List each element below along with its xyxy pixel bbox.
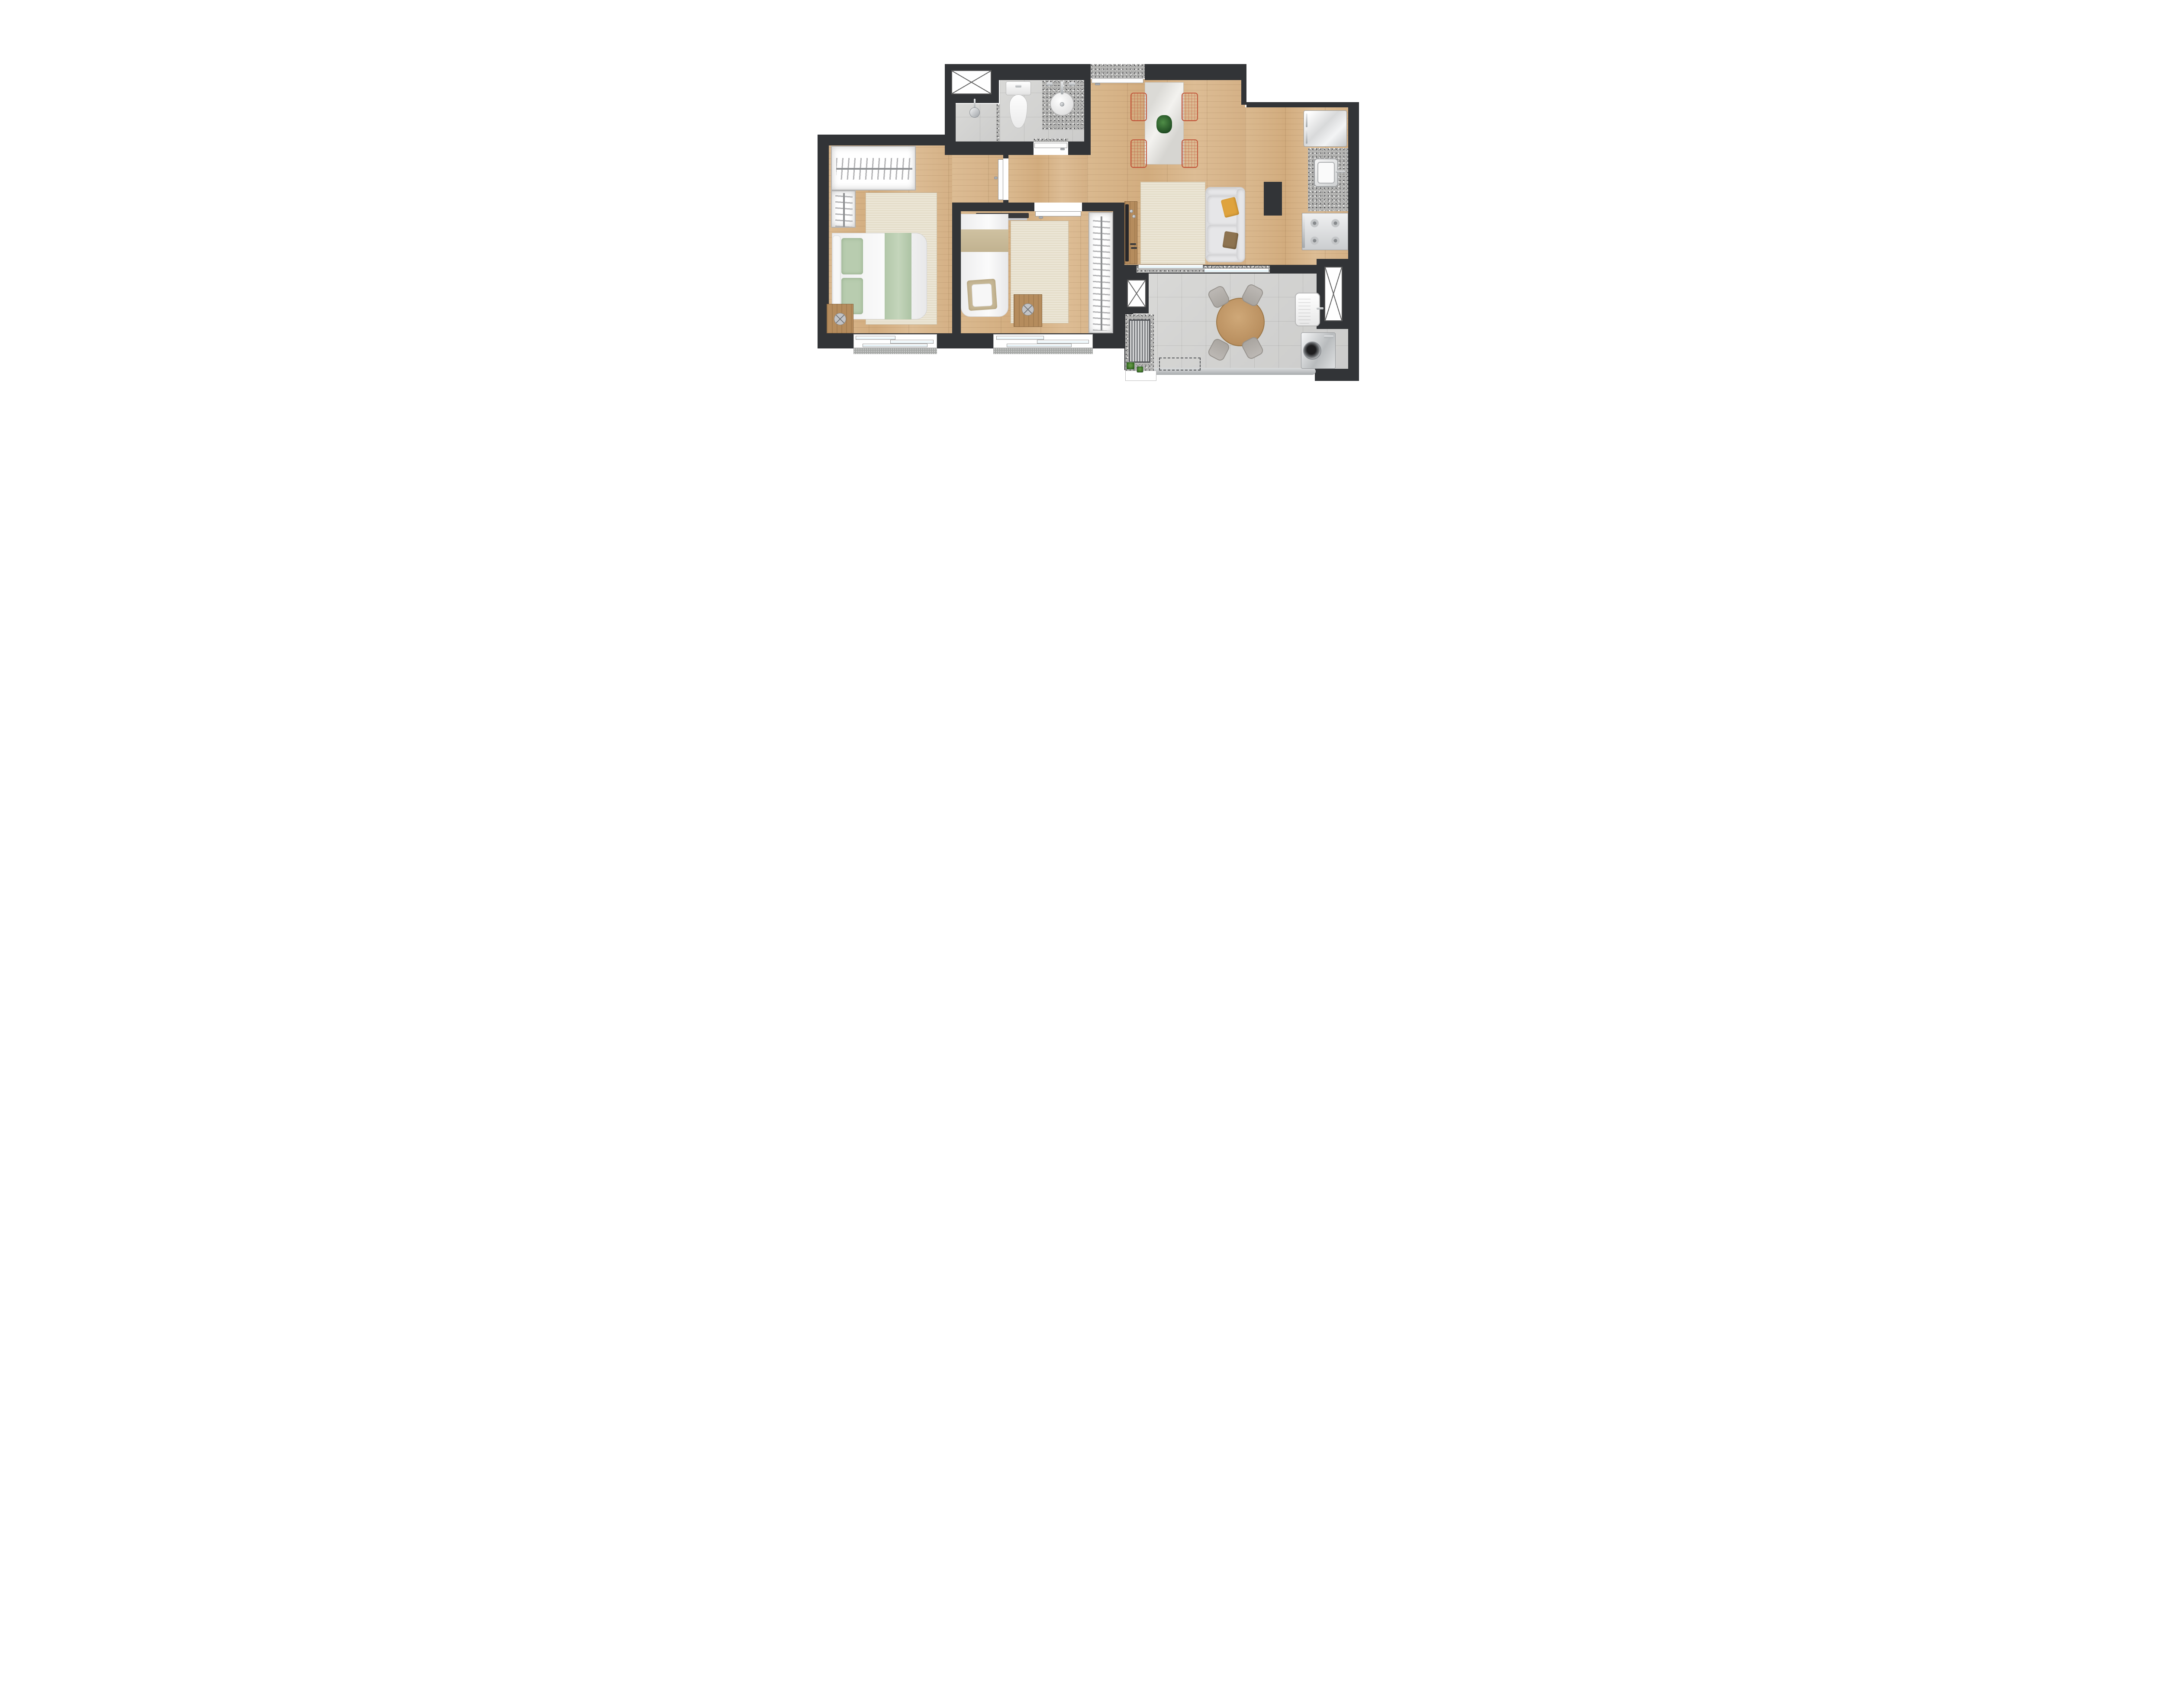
window-sash <box>856 336 895 340</box>
toilet-flush-button <box>1015 85 1021 87</box>
bedroom1-nightstand <box>827 304 853 333</box>
dining-centerpiece-plant <box>1156 115 1172 133</box>
entry-door-granite-sill <box>1091 64 1145 78</box>
bedroom1-door-handle <box>994 177 998 179</box>
bed-pillow-white <box>972 284 993 307</box>
bedroom2-single-bed <box>961 214 1008 317</box>
desk-lamp <box>1022 303 1034 316</box>
dining-chair <box>1130 93 1147 121</box>
dining-chair <box>1130 139 1147 168</box>
stove-handle <box>1302 216 1305 248</box>
vanity-faucet <box>1061 81 1063 94</box>
laundry-sink-ribs <box>1298 297 1311 324</box>
bed-blanket-green <box>885 233 911 319</box>
bathroom-door-leaf <box>1034 143 1067 148</box>
vanity-faucet-handle-left <box>1047 82 1053 86</box>
tv-console <box>1124 201 1137 264</box>
balcony-plant <box>1137 366 1143 373</box>
wall-right <box>1348 102 1359 381</box>
table-flowers <box>1233 315 1249 331</box>
bedroom2-desk <box>1014 294 1042 327</box>
washer-door <box>1303 342 1321 360</box>
floor-hall <box>1008 155 1087 203</box>
bedroom2-doorway <box>1034 203 1082 211</box>
dining-chair <box>1182 139 1198 168</box>
wall-step-vertical <box>1241 80 1246 105</box>
wall-bedroom2-right <box>1113 203 1124 348</box>
wall-bedroom1-top <box>818 135 945 145</box>
decor-cup <box>1132 215 1136 218</box>
sofa <box>1205 187 1245 262</box>
toilet <box>1006 81 1031 129</box>
shaft-service <box>1324 267 1343 321</box>
decor-flowers <box>1130 229 1136 234</box>
window-sash <box>996 336 1044 340</box>
balcony-sliding-door-1 <box>1138 264 1203 269</box>
entry-door-handle <box>1095 83 1100 85</box>
washing-machine <box>1301 332 1336 369</box>
living-rug <box>1140 182 1205 264</box>
fridge-handle <box>1306 113 1307 127</box>
sofa-armrest <box>1206 255 1238 261</box>
balcony-plant <box>1126 362 1135 370</box>
vanity-faucet-handle-right <box>1069 82 1075 86</box>
closet-rail <box>843 193 845 227</box>
tv <box>1125 204 1129 261</box>
fridge-handle <box>1306 130 1307 144</box>
shower-granite-divider <box>996 104 1000 142</box>
sofa-pillow-brown <box>1222 231 1239 250</box>
closet-rail <box>836 168 912 170</box>
decor-remote <box>1131 247 1137 249</box>
decor-remote <box>1130 243 1136 245</box>
bedroom2-window-sill <box>993 348 1093 354</box>
kitchen-sink <box>1314 158 1338 187</box>
washer-panel <box>1324 335 1333 338</box>
kitchen-faucet <box>1336 171 1345 173</box>
stove <box>1302 213 1348 250</box>
bed-blanket-tan <box>961 229 1008 252</box>
entry-door-leaf <box>1092 78 1143 83</box>
bedroom1-window <box>853 334 937 348</box>
bedroom2-door-handle <box>1039 216 1043 219</box>
floor-plan <box>757 0 1407 427</box>
bedroom2-door-leaf <box>1035 211 1081 216</box>
laundry-faucet <box>1317 307 1324 309</box>
vanity-drain <box>1060 102 1064 106</box>
bedroom1-closet-left <box>831 190 856 228</box>
sofa-armrest <box>1206 188 1238 195</box>
decor-cup <box>1130 209 1133 213</box>
bedroom2-window <box>993 334 1093 348</box>
wall-bedroom1-right <box>952 203 961 333</box>
dining-chair <box>1182 93 1198 121</box>
bathroom-door-threshold <box>1034 139 1068 142</box>
wall-balcony-bottom-right <box>1315 369 1359 381</box>
shaft-balcony <box>1127 280 1146 307</box>
equipment-projection-dashed <box>1159 358 1201 371</box>
balcony-sliding-door-2 <box>1204 268 1269 273</box>
toilet-tank <box>1006 81 1031 95</box>
toilet-bowl <box>1009 94 1027 128</box>
balcony-glass-railing <box>1129 368 1316 375</box>
bedroom1-doorway <box>1003 158 1008 200</box>
nightstand-lamp <box>834 313 846 325</box>
wall-stub-living <box>1264 182 1282 216</box>
fridge <box>1304 110 1347 147</box>
closet-rail <box>1101 216 1102 331</box>
bed-pillow-green <box>841 238 863 274</box>
bedroom1-closet-top <box>831 146 916 190</box>
window-sash <box>890 340 934 344</box>
bedroom1-door-leaf <box>998 159 1003 200</box>
window-sash <box>863 344 927 347</box>
barbecue-grill <box>1129 319 1150 363</box>
window-sash <box>1037 340 1089 344</box>
bathroom-door-handle <box>1060 148 1065 150</box>
laundry-sink <box>1295 293 1320 326</box>
shower-head <box>969 107 980 118</box>
window-sash <box>1007 344 1072 347</box>
kitchen-sink-basin <box>1317 162 1335 184</box>
wall-top-right-of-entry <box>1145 64 1246 80</box>
sofa-back <box>1237 189 1244 261</box>
wall-kitchen-top <box>1246 102 1359 107</box>
shaft-bathroom <box>951 70 992 94</box>
bedroom1-window-sill <box>853 348 937 354</box>
bedroom2-closet <box>1088 212 1113 333</box>
